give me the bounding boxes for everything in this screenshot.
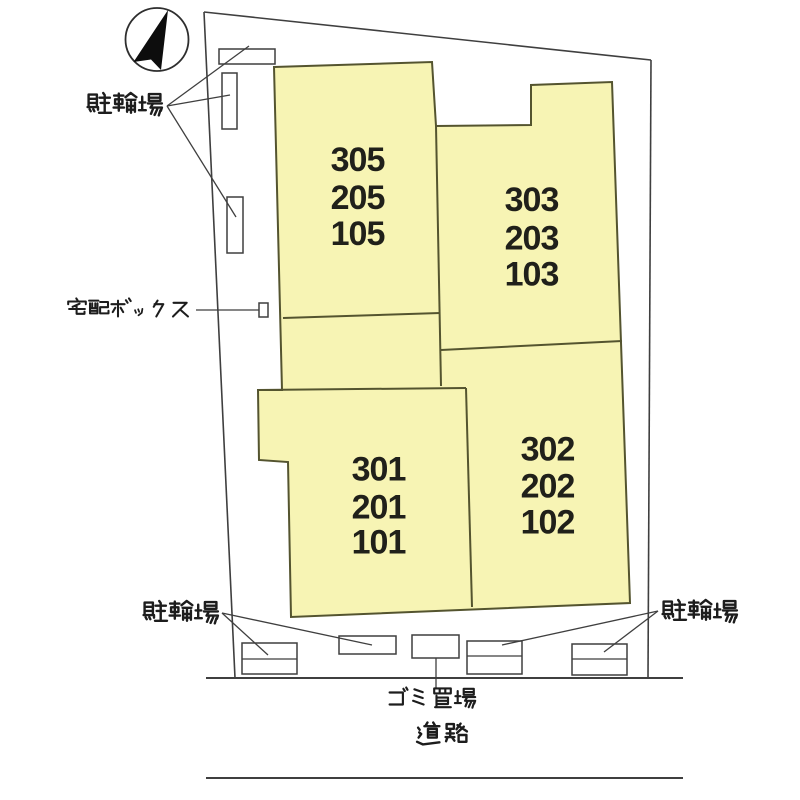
svg-text:101: 101 xyxy=(352,524,406,562)
svg-text:302: 302 xyxy=(521,431,575,469)
svg-text:102: 102 xyxy=(521,504,575,542)
svg-text:301: 301 xyxy=(352,451,406,489)
svg-text:201: 201 xyxy=(352,489,406,527)
svg-text:103: 103 xyxy=(505,256,559,294)
svg-text:205: 205 xyxy=(331,179,385,217)
svg-text:303: 303 xyxy=(505,181,559,219)
svg-text:305: 305 xyxy=(331,141,385,179)
svg-text:105: 105 xyxy=(331,215,385,253)
svg-text:203: 203 xyxy=(505,220,559,258)
svg-text:202: 202 xyxy=(521,468,575,506)
